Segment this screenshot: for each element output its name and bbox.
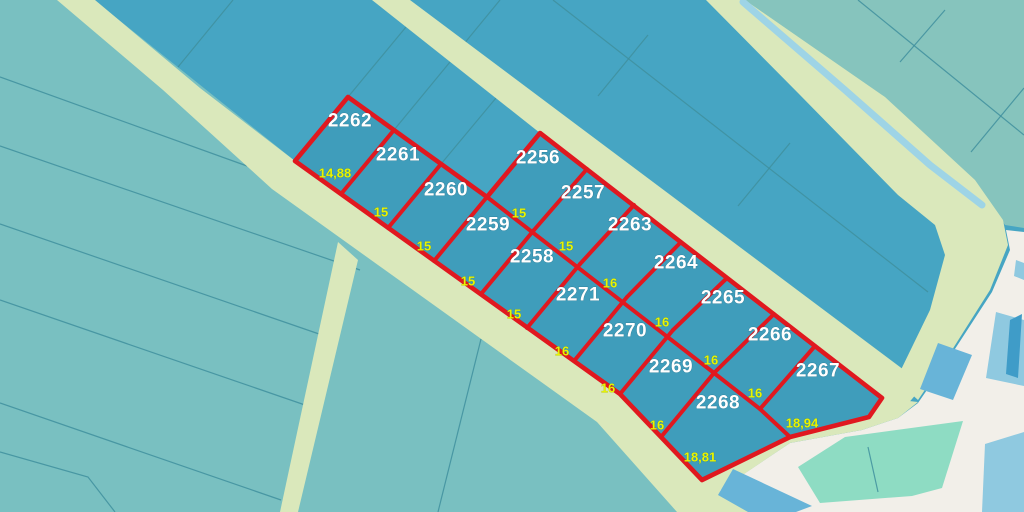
dimension-label-16: 16 <box>655 315 669 330</box>
parcel-number-label-2263[interactable]: 2263 <box>608 215 652 236</box>
dimension-label-16: 16 <box>650 418 664 433</box>
dimension-label-16: 16 <box>555 344 569 359</box>
dimension-label-16: 16 <box>704 353 718 368</box>
parcel-number-label-2271[interactable]: 2271 <box>556 285 600 306</box>
dimension-label-15: 15 <box>512 206 526 221</box>
map-canvas[interactable]: 2262226122602259225822712270226922682256… <box>0 0 1024 512</box>
parcel-number-label-2258[interactable]: 2258 <box>510 247 554 268</box>
dimension-label-18-94: 18,94 <box>786 416 819 431</box>
parcel-number-label-2266[interactable]: 2266 <box>748 325 792 346</box>
dimension-label-15: 15 <box>374 205 388 220</box>
dimension-label-15: 15 <box>461 274 475 289</box>
map-viewport[interactable]: 2262226122602259225822712270226922682256… <box>0 0 1024 512</box>
parcel-number-label-2256[interactable]: 2256 <box>516 148 560 169</box>
parcel-number-label-2261[interactable]: 2261 <box>376 145 420 166</box>
dimension-label-15: 15 <box>507 307 521 322</box>
parcel-number-label-2270[interactable]: 2270 <box>603 321 647 342</box>
blue-lot-e <box>982 432 1024 512</box>
parcel-number-label-2267[interactable]: 2267 <box>796 361 840 382</box>
parcel-number-label-2262[interactable]: 2262 <box>328 111 372 132</box>
parcel-number-label-2269[interactable]: 2269 <box>649 357 693 378</box>
parcel-number-label-2268[interactable]: 2268 <box>696 393 740 414</box>
dimension-label-16: 16 <box>748 386 762 401</box>
parcel-number-label-2259[interactable]: 2259 <box>466 215 510 236</box>
parcel-number-label-2257[interactable]: 2257 <box>561 183 605 204</box>
dimension-label-15: 15 <box>417 239 431 254</box>
dimension-label-15: 15 <box>559 239 573 254</box>
dimension-label-16: 16 <box>601 381 615 396</box>
dimension-label-16: 16 <box>603 276 617 291</box>
dimension-label-14-88: 14,88 <box>319 166 352 181</box>
parcel-number-label-2264[interactable]: 2264 <box>654 253 698 274</box>
parcel-number-label-2265[interactable]: 2265 <box>701 288 745 309</box>
dimension-label-18-81: 18,81 <box>684 450 717 465</box>
parcel-number-label-2260[interactable]: 2260 <box>424 180 468 201</box>
